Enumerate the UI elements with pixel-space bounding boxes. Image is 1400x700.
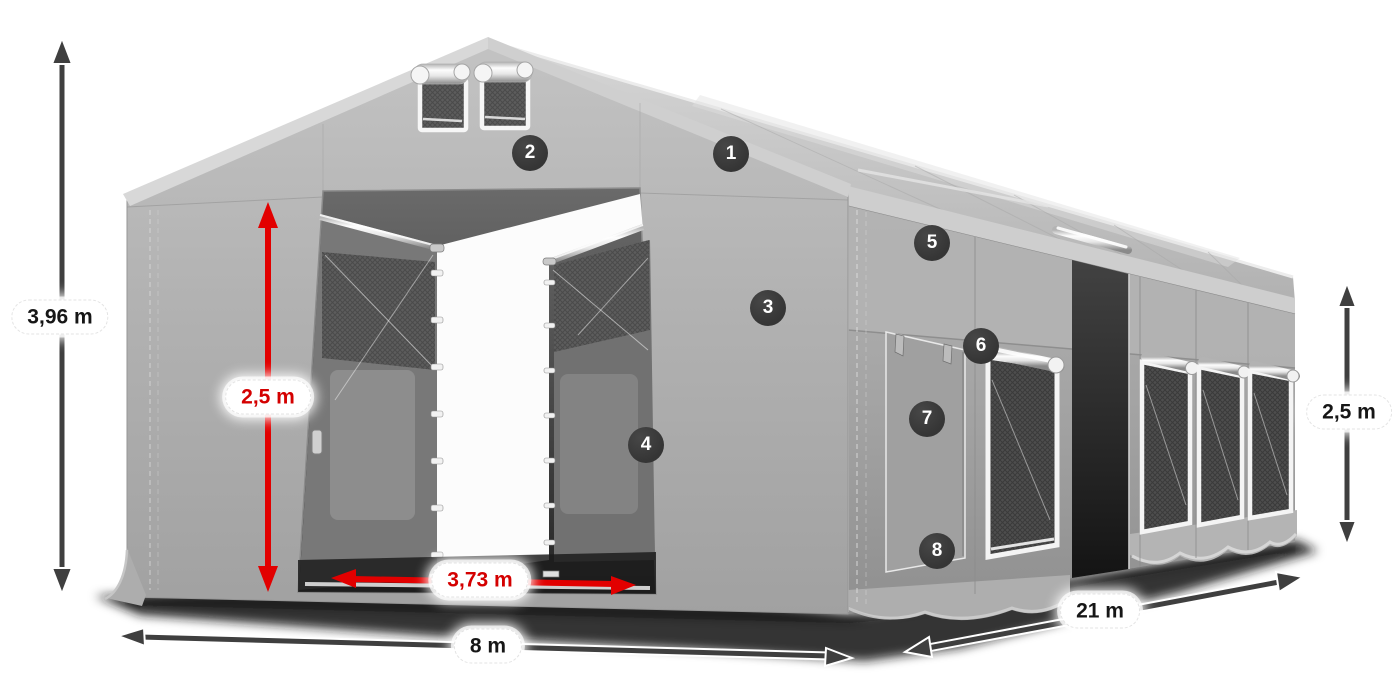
side-window-2 (1142, 357, 1199, 532)
tent-dimension-diagram: 3,96 m 2,5 m 3,73 m 8 m 21 m 2,5 m 1 2 3… (0, 0, 1400, 700)
dim-label-entrance-height: 2,5 m (225, 380, 311, 415)
hotspot-4[interactable]: 4 (628, 427, 664, 463)
hotspot-7[interactable]: 7 (909, 401, 945, 437)
dim-label-side-length: 21 m (1060, 594, 1140, 629)
entrance-handle (312, 430, 322, 454)
tent-illustration (0, 0, 1400, 700)
dim-label-total-height: 3,96 m (11, 300, 108, 335)
hotspot-1[interactable]: 1 (713, 136, 749, 172)
gable-vent-right (474, 62, 533, 128)
side-window-3 (1199, 362, 1250, 525)
hotspot-6[interactable]: 6 (963, 328, 999, 364)
interior-right-slide-door (553, 240, 655, 562)
entrance-opening (298, 188, 656, 594)
hotspot-2[interactable]: 2 (512, 135, 548, 171)
dim-label-front-width: 8 m (454, 629, 522, 664)
side-window-1 (988, 349, 1064, 557)
dim-label-side-height: 2,5 m (1306, 395, 1392, 430)
gable-vent-left (411, 64, 470, 130)
hotspot-8[interactable]: 8 (919, 533, 955, 569)
dim-label-entrance-width: 3,73 m (431, 563, 528, 598)
hotspot-3[interactable]: 3 (750, 290, 786, 326)
interior-left-slide-door (299, 219, 437, 590)
interior-left-pole (430, 244, 444, 580)
hotspot-5[interactable]: 5 (914, 225, 950, 261)
side-window-4 (1250, 366, 1299, 518)
